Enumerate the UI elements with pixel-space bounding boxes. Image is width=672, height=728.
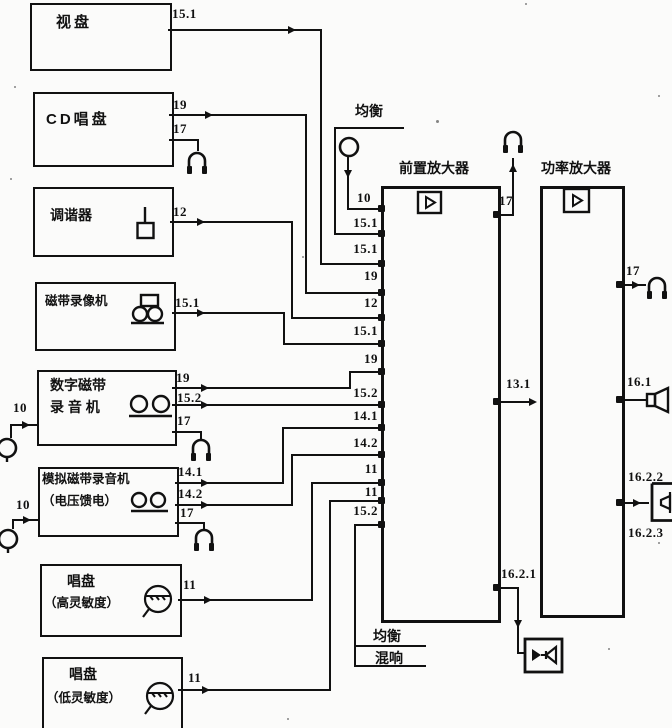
wire: [329, 500, 383, 502]
turntable-low-label-2: （低灵敏度）: [46, 690, 121, 706]
arrow-right: [632, 281, 640, 289]
junction-dot: [378, 230, 385, 237]
junction-dot: [378, 314, 385, 321]
junction-dot: [616, 396, 623, 403]
vcr-out-label: 15.1: [175, 296, 200, 309]
wire: [334, 127, 336, 235]
wire: [291, 221, 293, 317]
wire: [175, 522, 205, 524]
wire: [283, 312, 285, 345]
dat-mic-in-label: 10: [13, 401, 27, 414]
wire: [329, 500, 331, 691]
vcr-label: 磁带录像机: [45, 293, 108, 309]
dat-rec-out-label: 15.2: [177, 391, 202, 404]
headphones-icon: [190, 437, 212, 463]
turntable-icon: [141, 681, 177, 719]
preamp-input-label-1: 10: [357, 191, 371, 204]
wire: [175, 482, 284, 484]
cd-player-label: CD唱盘: [46, 112, 110, 128]
cd-line-out-label: 19: [173, 98, 187, 111]
arrow-right: [22, 421, 30, 429]
preamp-input-label-11: 11: [344, 462, 378, 475]
arrow-right: [201, 401, 209, 409]
analog-tape-label-1: 模拟磁带录音机: [42, 471, 130, 487]
arrow-right: [205, 111, 213, 119]
turntable-icon: [139, 584, 175, 622]
junction-dot: [616, 499, 623, 506]
video-disc-label: 视盘: [56, 15, 92, 31]
arrow-right: [201, 384, 209, 392]
dat-recorder-label-2: 录 音 机: [50, 399, 100, 415]
preamp-input-label-9: 14.1: [344, 409, 378, 422]
arrow-right: [288, 26, 296, 34]
video-disc-out-label: 15.1: [172, 7, 197, 20]
wire: [172, 431, 202, 433]
wire: [354, 524, 383, 526]
preamp-phones-label: 17: [499, 194, 513, 207]
arrow-right: [202, 686, 210, 694]
wire: [305, 292, 383, 294]
scan-speck: [658, 542, 660, 544]
poweramp-title: 功率放大器: [541, 160, 611, 176]
vcr-icon: [130, 294, 168, 326]
loop-equalizer-label: 均衡: [373, 628, 401, 644]
wire: [283, 343, 383, 345]
poweramp-speaker2-bottom-label: 16.2.3: [628, 526, 664, 539]
junction-dot: [378, 205, 385, 212]
wire: [170, 221, 293, 223]
preamp-input-label-7: 19: [344, 352, 378, 365]
wire: [495, 401, 533, 403]
tuner-out-label: 12: [173, 205, 187, 218]
preamp-title: 前置放大器: [399, 160, 469, 176]
arrow-right: [197, 218, 205, 226]
turntable-high-label-1: 唱盘: [67, 573, 95, 589]
wire: [291, 317, 383, 319]
junction-dot: [493, 398, 500, 405]
powered-speaker-icon: [524, 638, 564, 674]
scan-speck: [287, 718, 289, 720]
junction-dot: [378, 497, 385, 504]
preamp-input-label-13: 15.2: [344, 504, 378, 517]
loop-reverb-label: 混响: [375, 650, 403, 666]
wire: [172, 387, 351, 389]
microphone-icon: [0, 437, 20, 463]
wire: [334, 127, 404, 129]
wire: [354, 645, 426, 647]
junction-dot: [493, 584, 500, 591]
arrow-down: [344, 170, 352, 178]
tape-reels-icon: [128, 394, 174, 420]
headphones-icon: [646, 275, 668, 301]
wire: [169, 114, 307, 116]
analog-out1-label: 14.1: [178, 465, 203, 478]
wire: [169, 139, 199, 141]
junction-dot: [378, 368, 385, 375]
wire: [347, 157, 349, 209]
junction-dot: [616, 281, 623, 288]
poweramp-box: [540, 186, 625, 618]
junction-dot: [378, 260, 385, 267]
speaker-box-icon: [650, 482, 672, 522]
analog-tape-label-2: （电压馈电）: [42, 493, 117, 509]
preamp-input-label-10: 14.2: [344, 436, 378, 449]
turntable-high-label-2: （高灵敏度）: [44, 595, 119, 611]
cd-player-box: [33, 92, 174, 167]
arrow-right: [204, 596, 212, 604]
wire: [178, 599, 313, 601]
equalizer-top-label: 均衡: [355, 103, 383, 119]
dat-recorder-label-1: 数字磁带: [50, 377, 106, 393]
scan-speck: [14, 86, 16, 88]
amplifier-icon: [417, 191, 443, 215]
wire: [619, 399, 648, 401]
preamp-input-label-8: 15.2: [344, 386, 378, 399]
arrow-right: [23, 516, 31, 524]
preamp-input-label-2: 15.1: [344, 216, 378, 229]
preamp-sub-out-label: 16.2.1: [501, 567, 537, 580]
preamp-input-label-6: 15.1: [344, 324, 378, 337]
scan-speck: [302, 256, 304, 258]
tuner-label: 调谐器: [50, 207, 92, 223]
preamp-input-label-5: 12: [344, 296, 378, 309]
arrow-right: [197, 309, 205, 317]
dat-phones-out-label: 17: [177, 414, 191, 427]
wire: [178, 689, 331, 691]
junction-dot: [378, 340, 385, 347]
wire: [10, 424, 12, 438]
analog-phones-out-label: 17: [180, 506, 194, 519]
wire: [282, 427, 383, 429]
headphones-icon: [186, 150, 208, 176]
video-disc-box: [30, 3, 172, 71]
scan-speck: [436, 120, 439, 123]
wire: [311, 482, 313, 601]
turntable-low-out-label: 11: [188, 671, 201, 684]
preamp-input-label-12: 11: [344, 485, 378, 498]
wire: [172, 312, 285, 314]
wire: [354, 665, 426, 667]
analog-out2-label: 14.2: [178, 487, 203, 500]
microphone-icon: [0, 528, 21, 554]
wire: [291, 454, 293, 506]
arrow-right: [633, 499, 641, 507]
arrow-up: [509, 164, 517, 172]
wire: [291, 454, 383, 456]
turntable-low-label-1: 唱盘: [69, 666, 97, 682]
microphone-icon: [339, 136, 363, 160]
audio-system-connection-diagram: 视盘 CD唱盘 调谐器 磁带录像机 数字磁带 录 音 机 模拟磁带录音机 （电压…: [0, 0, 672, 728]
wire: [168, 29, 322, 31]
wire: [282, 427, 284, 484]
speaker-icon: [646, 386, 672, 414]
analog-mic-in-label: 10: [16, 498, 30, 511]
scan-speck: [525, 3, 527, 5]
headphones-icon: [502, 129, 524, 155]
junction-dot: [378, 289, 385, 296]
scan-speck: [658, 95, 660, 97]
arrow-right: [529, 398, 537, 406]
dat-line-out-label: 19: [176, 371, 190, 384]
wire: [305, 114, 307, 292]
headphones-icon: [193, 527, 215, 553]
junction-dot: [493, 211, 500, 218]
wire: [320, 29, 322, 265]
wire: [320, 263, 383, 265]
radio-antenna-icon: [136, 206, 158, 242]
turntable-high-out-label: 11: [183, 578, 196, 591]
junction-dot: [378, 424, 385, 431]
preamp-input-label-3: 15.1: [344, 242, 378, 255]
amplifier-icon: [563, 188, 591, 214]
preamp-main-out-label: 13.1: [506, 377, 531, 390]
junction-dot: [378, 401, 385, 408]
preamp-box: [381, 186, 501, 623]
preamp-input-label-4: 19: [344, 269, 378, 282]
scan-speck: [608, 648, 610, 650]
junction-dot: [378, 479, 385, 486]
tape-reels-icon: [130, 491, 172, 515]
poweramp-phones-label: 17: [626, 264, 640, 277]
wire: [334, 233, 383, 235]
scan-speck: [10, 178, 12, 180]
arrow-right: [201, 501, 209, 509]
junction-dot: [378, 451, 385, 458]
cd-phones-out-label: 17: [173, 122, 187, 135]
arrow-down: [514, 620, 522, 628]
